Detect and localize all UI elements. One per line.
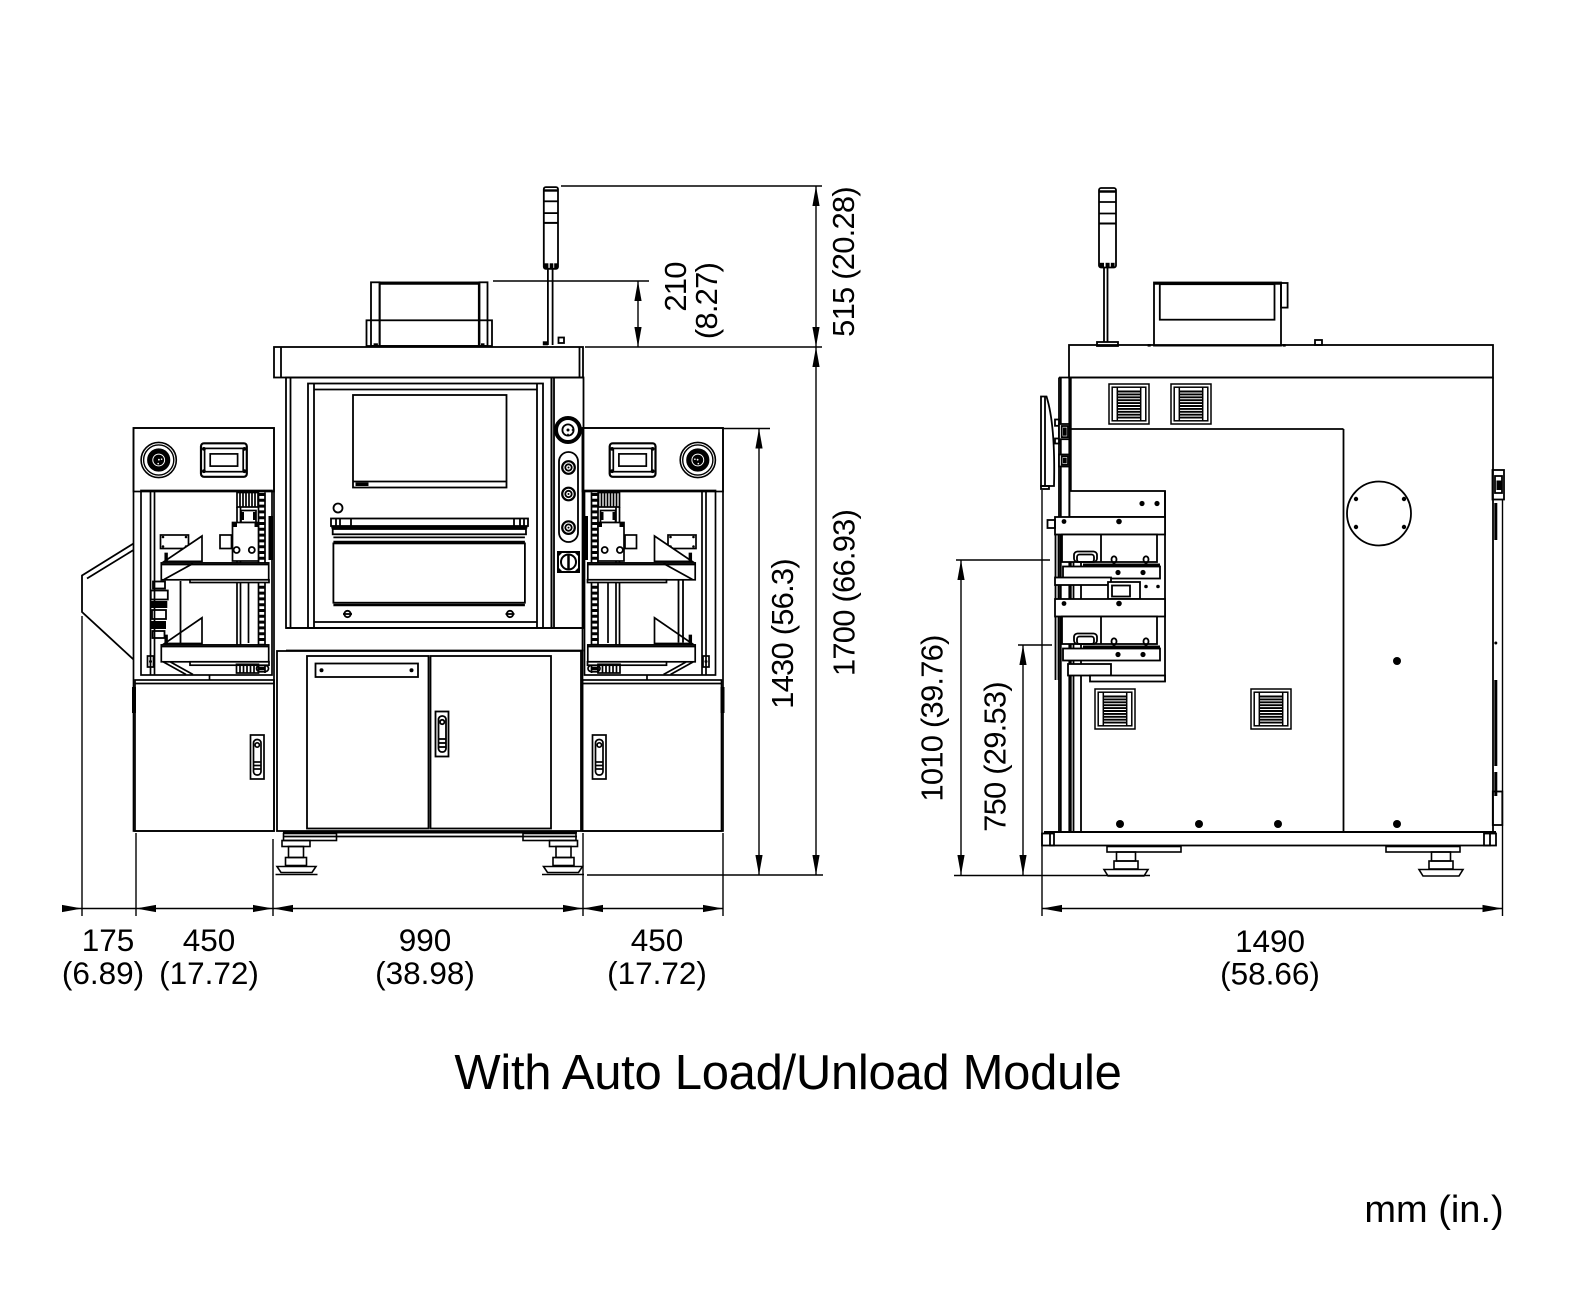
- svg-text:mm (in.): mm (in.): [1364, 1189, 1503, 1231]
- svg-text:1010 (39.76): 1010 (39.76): [915, 635, 950, 801]
- svg-text:(8.27): (8.27): [689, 263, 724, 339]
- svg-text:750 (29.53): 750 (29.53): [978, 682, 1013, 832]
- svg-text:450: 450: [183, 922, 236, 958]
- svg-text:(6.89): (6.89): [62, 955, 144, 991]
- svg-text:(58.66): (58.66): [1220, 956, 1320, 992]
- svg-text:1430 (56.3): 1430 (56.3): [765, 559, 800, 709]
- svg-text:175: 175: [82, 922, 135, 958]
- svg-text:1700 (66.93): 1700 (66.93): [827, 510, 862, 676]
- svg-text:515 (20.28): 515 (20.28): [826, 187, 861, 337]
- svg-text:(17.72): (17.72): [607, 955, 707, 991]
- svg-text:(17.72): (17.72): [159, 955, 259, 991]
- svg-text:(38.98): (38.98): [375, 955, 475, 991]
- svg-text:With Auto Load/Unload Module: With Auto Load/Unload Module: [454, 1046, 1121, 1100]
- svg-text:210: 210: [658, 262, 693, 312]
- svg-text:990: 990: [399, 922, 452, 958]
- svg-text:1490: 1490: [1235, 923, 1305, 959]
- svg-text:450: 450: [631, 922, 684, 958]
